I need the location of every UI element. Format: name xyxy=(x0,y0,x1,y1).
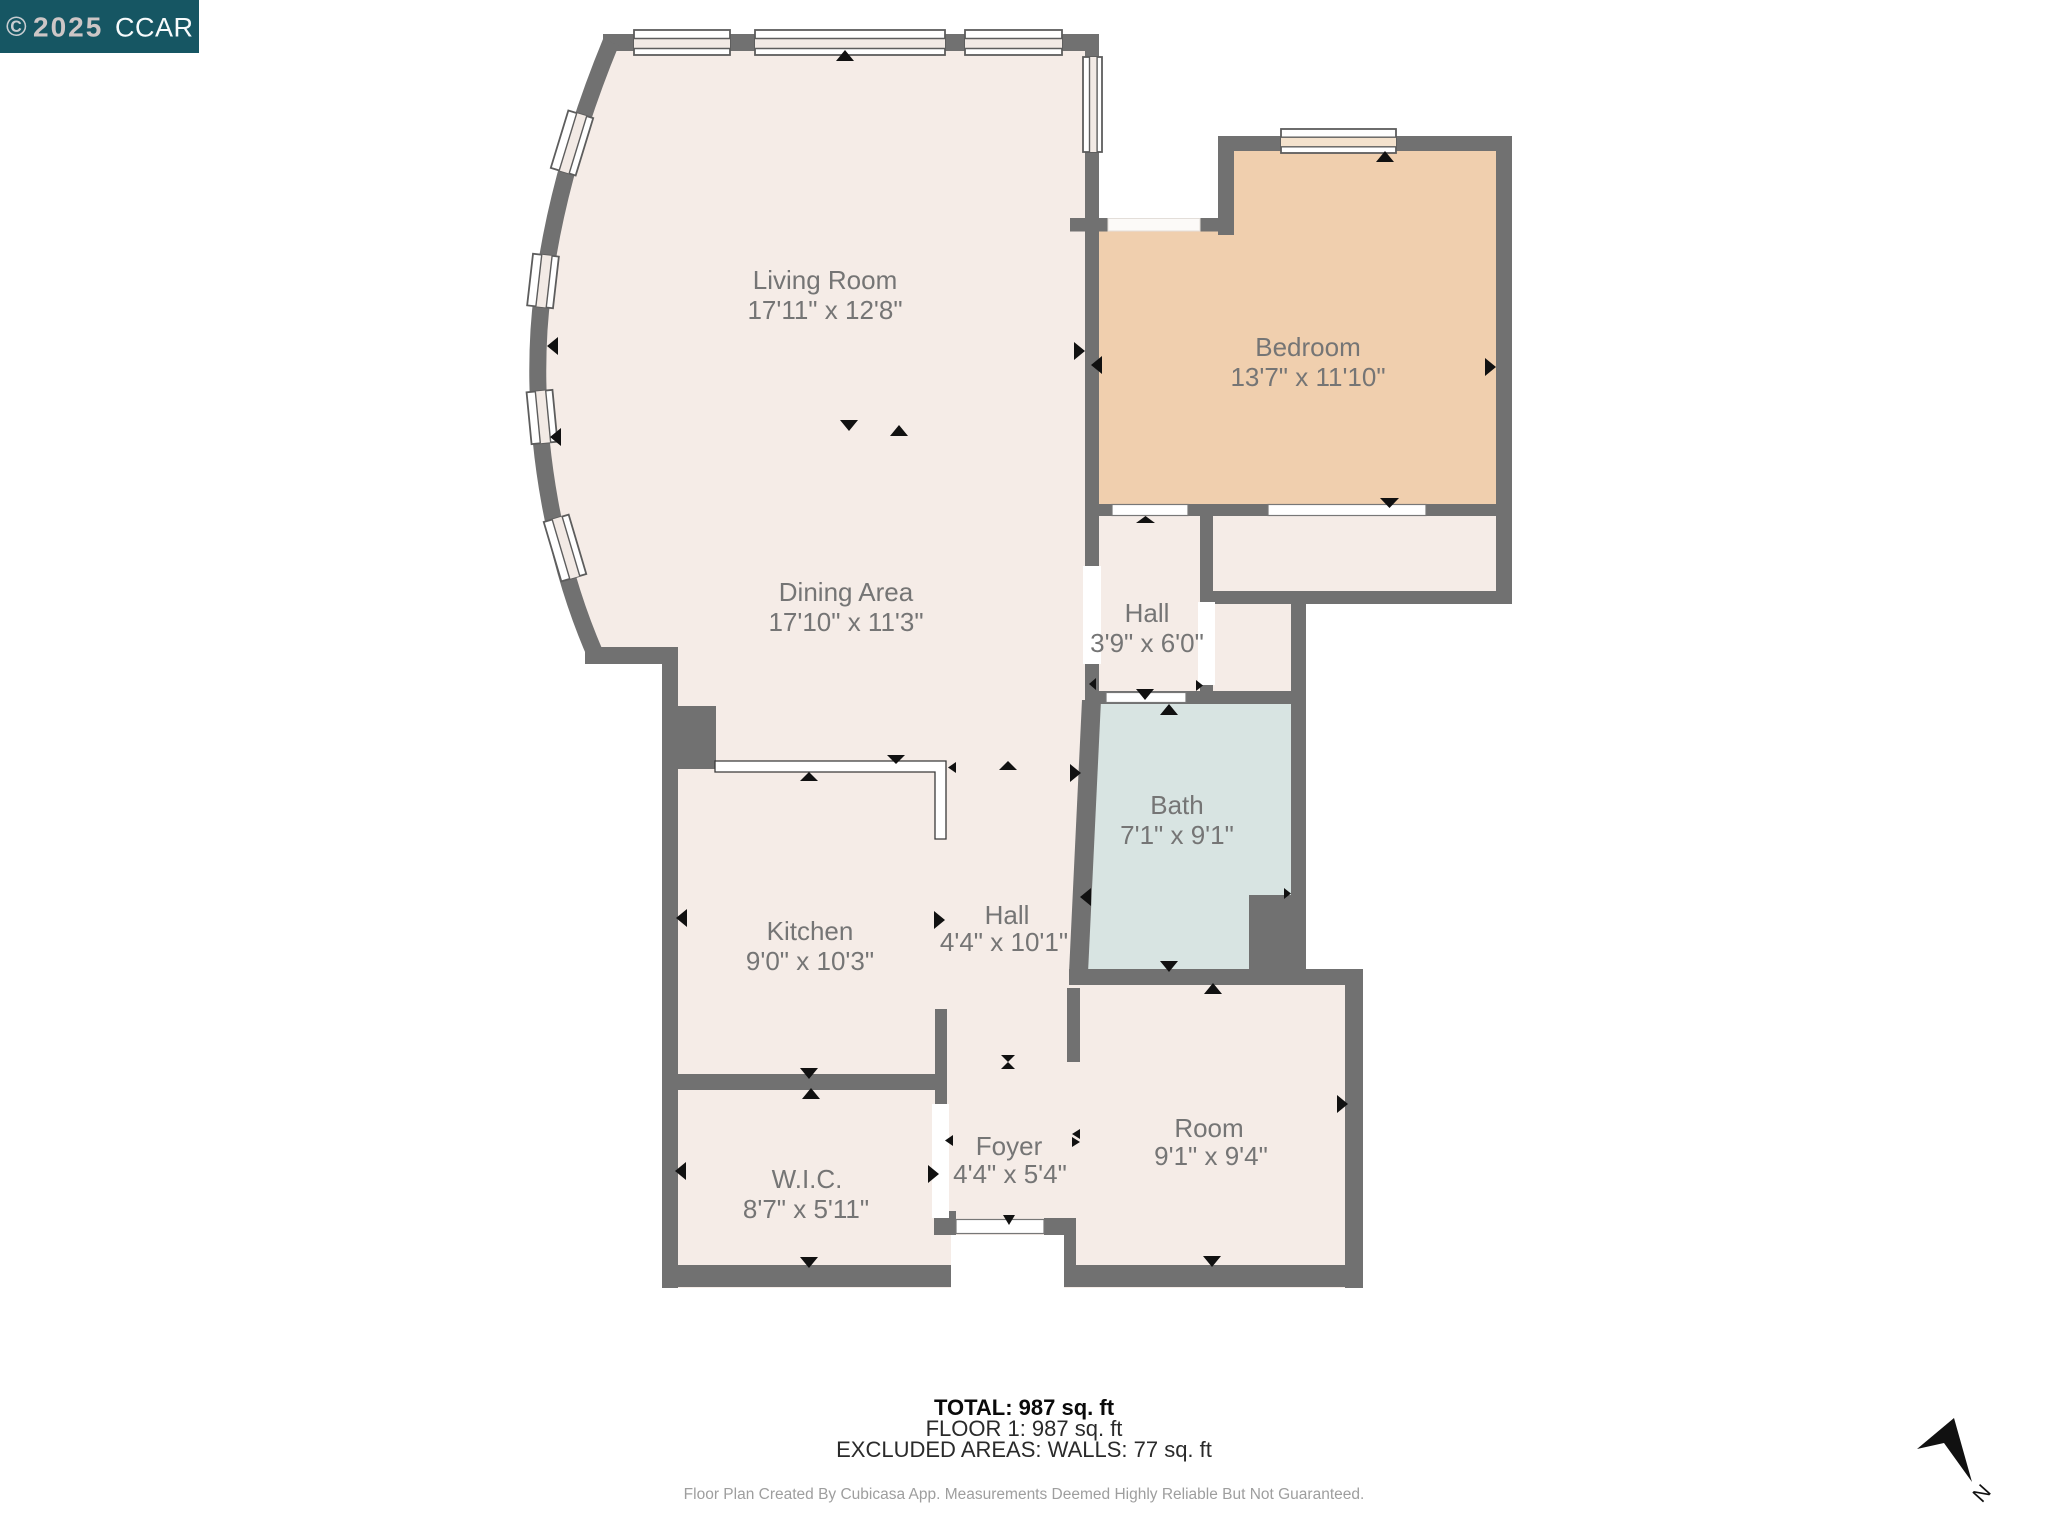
svg-text:Foyer: Foyer xyxy=(976,1131,1043,1161)
svg-text:9'1" x 9'4": 9'1" x 9'4" xyxy=(1154,1141,1268,1171)
svg-text:©: © xyxy=(6,11,27,42)
svg-text:8'7" x 5'11": 8'7" x 5'11" xyxy=(743,1194,869,1224)
svg-text:17'10" x 11'3": 17'10" x 11'3" xyxy=(768,607,923,637)
svg-text:Kitchen: Kitchen xyxy=(767,916,854,946)
svg-text:W.I.C.: W.I.C. xyxy=(772,1164,843,1194)
svg-text:13'7" x 11'10": 13'7" x 11'10" xyxy=(1230,362,1385,392)
svg-text:2025: 2025 xyxy=(33,12,103,43)
svg-text:4'4" x 10'1": 4'4" x 10'1" xyxy=(940,927,1068,957)
svg-text:Living Room: Living Room xyxy=(753,265,898,295)
svg-text:Hall: Hall xyxy=(1125,598,1170,628)
svg-text:4'4" x 5'4": 4'4" x 5'4" xyxy=(953,1159,1067,1189)
svg-text:7'1" x 9'1": 7'1" x 9'1" xyxy=(1120,820,1234,850)
svg-text:Bath: Bath xyxy=(1150,790,1204,820)
svg-text:Hall: Hall xyxy=(985,900,1030,930)
svg-text:EXCLUDED AREAS: WALLS: 77 sq.: EXCLUDED AREAS: WALLS: 77 sq. ft xyxy=(836,1437,1212,1462)
svg-text:Floor Plan Created By Cubicasa: Floor Plan Created By Cubicasa App. Meas… xyxy=(684,1486,1365,1503)
svg-text:Room: Room xyxy=(1174,1113,1243,1143)
svg-text:17'11" x 12'8": 17'11" x 12'8" xyxy=(747,295,902,325)
svg-text:Dining Area: Dining Area xyxy=(779,577,914,607)
svg-text:CCAR: CCAR xyxy=(115,13,194,43)
svg-text:Bedroom: Bedroom xyxy=(1255,332,1361,362)
svg-text:9'0" x 10'3": 9'0" x 10'3" xyxy=(746,946,874,976)
svg-text:3'9" x 6'0": 3'9" x 6'0" xyxy=(1090,628,1204,658)
